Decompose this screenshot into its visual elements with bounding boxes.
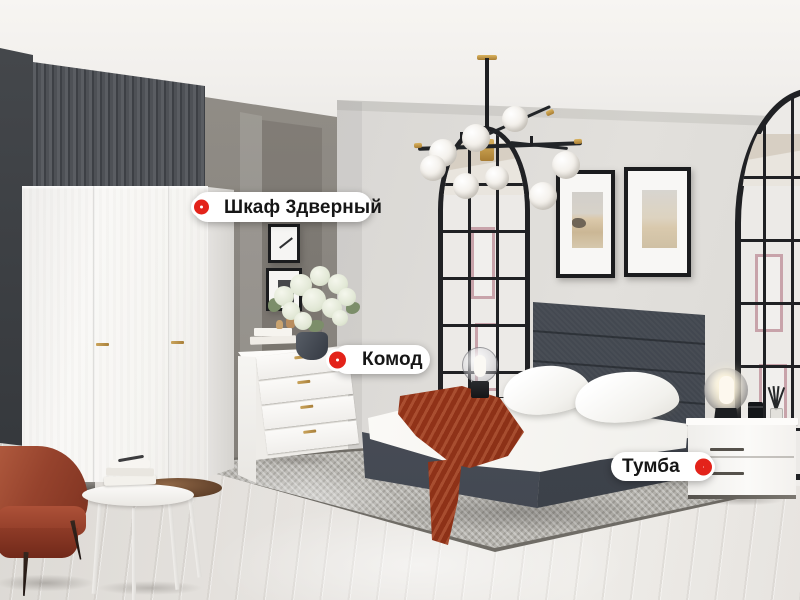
- chandelier-globe: [462, 124, 490, 152]
- nightstand-handle: [710, 448, 744, 451]
- drawer-handle: [303, 429, 316, 434]
- bedroom-product-photo: Шкаф 3дверный Комод Тумба: [0, 0, 800, 600]
- flower: [294, 312, 312, 330]
- window-mullion: [741, 176, 800, 179]
- window-mullion: [741, 239, 800, 242]
- wardrobe-door-seam: [168, 186, 170, 482]
- table-leg: [188, 498, 202, 578]
- lamp-base: [471, 381, 489, 398]
- armchair-leg: [19, 552, 31, 596]
- wardrobe-side: [208, 187, 234, 477]
- dune-photo: [642, 190, 677, 248]
- chandelier-globe: [485, 166, 509, 190]
- red-ring-icon[interactable]: [194, 200, 209, 215]
- hotspot-wardrobe[interactable]: Шкаф 3дверный: [193, 192, 372, 222]
- chandelier-globe: [502, 106, 528, 132]
- hotspot-nightstand[interactable]: Тумба: [611, 452, 714, 481]
- candle-lid: [748, 406, 763, 408]
- chandelier-pin: [530, 136, 533, 146]
- magazine: [106, 468, 154, 477]
- drawer-handle: [300, 405, 313, 410]
- hotspot-dresser[interactable]: Комод: [333, 345, 430, 374]
- armchair-base: [0, 528, 78, 558]
- hotspot-label: Шкаф 3дверный: [224, 198, 382, 217]
- wardrobe-door-seam: [93, 186, 95, 482]
- window-mullion: [443, 230, 525, 233]
- nightstand-lamp-bulb: [719, 376, 734, 404]
- window-mullion: [443, 324, 525, 327]
- building-window: [755, 254, 783, 332]
- window-mullion: [741, 302, 800, 305]
- arrow-sketch: [279, 237, 293, 248]
- chandelier-globe: [529, 182, 557, 210]
- chandelier-gold-tip: [574, 139, 582, 144]
- chandelier: [410, 40, 590, 210]
- magazine: [110, 460, 150, 468]
- red-ring-icon[interactable]: [329, 351, 346, 368]
- wardrobe-front: [22, 186, 208, 482]
- wardrobe-handle: [171, 341, 184, 344]
- nightstand-plinth: [688, 495, 796, 499]
- nightstand-handle: [710, 472, 744, 475]
- magazine: [104, 475, 156, 486]
- chandelier-gold-tip: [545, 109, 554, 117]
- lamp-bulb: [474, 355, 486, 377]
- table-leg: [92, 504, 102, 594]
- table-leg: [168, 504, 179, 590]
- side-tables: [82, 452, 217, 598]
- window-mullion: [443, 277, 525, 280]
- hotspot-label: Комод: [362, 350, 423, 369]
- drawer-handle: [297, 380, 310, 385]
- wall-art-beach-right: [624, 167, 691, 277]
- red-ring-icon[interactable]: [695, 458, 712, 475]
- flower-bouquet: [268, 258, 360, 348]
- globe-table-lamp: [462, 347, 498, 400]
- dresser-side: [238, 352, 256, 483]
- photo-hill: [572, 218, 586, 228]
- flower: [310, 266, 330, 286]
- building-window: [471, 227, 495, 299]
- nightstand-top: [686, 418, 798, 425]
- flower: [332, 310, 348, 326]
- chandelier-globe: [420, 155, 446, 181]
- hotspot-label: Тумба: [622, 457, 680, 476]
- chandelier-gold-tip: [414, 143, 422, 148]
- nightstand: [686, 360, 800, 502]
- chandelier-globe: [453, 173, 479, 199]
- chandelier-globe: [552, 151, 580, 179]
- table-leg: [132, 508, 136, 600]
- wardrobe-handle: [96, 343, 109, 346]
- magazine-stack: [104, 456, 160, 488]
